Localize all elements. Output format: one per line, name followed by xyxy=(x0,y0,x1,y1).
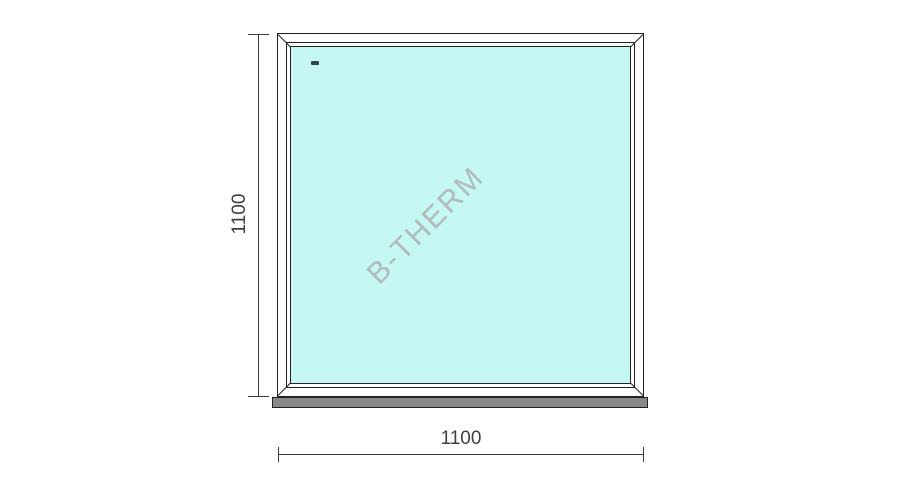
height-dimension-tick-bottom xyxy=(248,396,269,397)
width-dimension-tick-left xyxy=(278,447,279,462)
miter-joint-bottom-left xyxy=(278,382,291,395)
miter-joint-top-left xyxy=(278,34,291,47)
width-dimension-line xyxy=(278,454,644,455)
window-sill xyxy=(272,397,648,408)
miter-joint-bottom-right xyxy=(630,382,643,395)
miter-joint-top-right xyxy=(630,34,643,47)
height-dimension-line xyxy=(258,34,259,397)
width-dimension-tick-right xyxy=(643,447,644,462)
width-dimension-label: 1100 xyxy=(278,429,644,449)
window-drawing-canvas: 1100 B-THERM 1100 xyxy=(0,0,900,500)
height-dimension-tick-top xyxy=(248,34,269,35)
fixed-glazing-marker xyxy=(311,61,319,65)
height-dimension-label: 1100 xyxy=(230,188,250,240)
